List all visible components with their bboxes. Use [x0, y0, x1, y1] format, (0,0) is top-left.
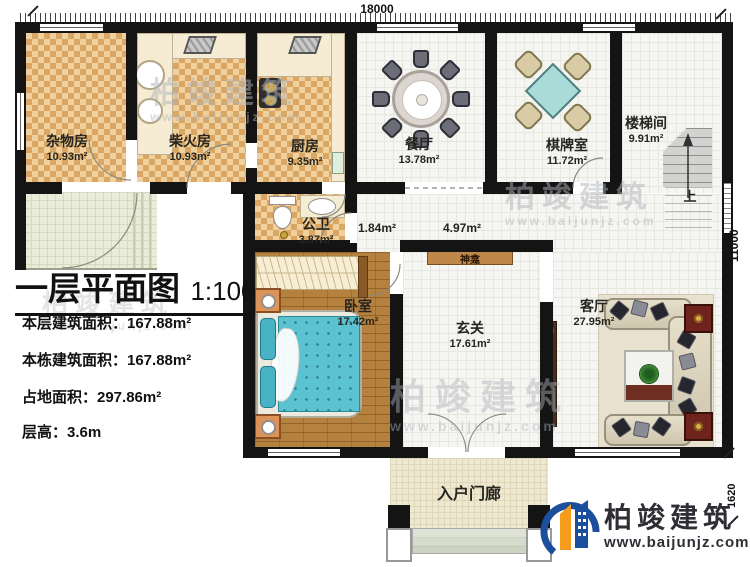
dining-table-center [416, 94, 428, 106]
wall-bath-bottom [243, 240, 350, 252]
dining-table [392, 70, 450, 128]
wall-storage-firewood [126, 33, 137, 140]
wall-foyer-living [540, 302, 553, 458]
floor-plan: 神龛 [0, 0, 750, 567]
gas-stove [259, 78, 281, 108]
burner-icon [264, 95, 277, 106]
wall-segment [345, 182, 405, 194]
wall-chess-stairwell [610, 33, 622, 182]
porch-column [388, 505, 410, 528]
bathroom-sink [308, 198, 336, 215]
kitchen-sink [332, 152, 344, 174]
wall-segment [505, 447, 575, 458]
wall-segment [243, 447, 268, 458]
bedroom-door-leaf [358, 256, 368, 298]
window [15, 93, 26, 150]
brand-url: www.baijunjz.com [604, 534, 749, 551]
terrace-steps [133, 192, 157, 268]
title-block: 一层平面图 1:100 [15, 262, 250, 316]
floor-drain [280, 231, 288, 239]
window [40, 22, 103, 33]
plan-scale: 1:100 [190, 276, 255, 306]
range-hood-icon [288, 36, 322, 54]
storage-room-floor [26, 33, 126, 182]
range-hood-icon [183, 36, 217, 54]
nightstand [254, 288, 281, 313]
wall-foyer-top [400, 240, 553, 252]
window [722, 183, 733, 233]
brand-name: 柏竣建筑 [604, 496, 736, 536]
coffee-table-shelf [626, 385, 672, 400]
brand-logo: 柏竣建筑 www.baijunjz.com [538, 490, 748, 562]
wall-segment [15, 182, 62, 194]
entry-porch-floor [390, 458, 548, 528]
window [377, 22, 458, 33]
firewood-counter-left [137, 33, 173, 155]
wall-west-bedroom [243, 194, 255, 458]
shrine-label: 神龛 [460, 255, 480, 266]
nightstand [254, 414, 281, 439]
dining-chair [452, 91, 470, 107]
wardrobe [256, 256, 360, 290]
title-line-building-area: 本栋建筑面积：167.88m² [22, 349, 191, 370]
sofa-pillow [633, 421, 650, 438]
wood-stove-burner [137, 98, 163, 124]
stairs-lower-outline [665, 187, 712, 229]
wall-dining-chess [485, 33, 497, 182]
wall-segment [603, 182, 622, 194]
wall-segment [340, 447, 428, 458]
wall-segment [231, 182, 322, 194]
wall-bedroom-foyer [390, 294, 403, 458]
brand-logo-icon [538, 492, 600, 560]
porch-column-base-left [386, 528, 412, 562]
title-line-footprint-area: 占地面积：297.86m² [22, 386, 161, 407]
bed-pillow [260, 318, 276, 360]
side-table [684, 304, 713, 333]
wall-segment [483, 182, 573, 194]
side-table [684, 412, 713, 441]
wall-segment [150, 182, 187, 194]
window [583, 22, 635, 33]
wall-firewood-kitchen [246, 33, 257, 143]
dining-chair [413, 50, 429, 68]
plan-title: 一层平面图 [15, 270, 180, 307]
porch-steps [412, 528, 528, 554]
dimension-right: 11000 [727, 229, 741, 262]
toilet-tank [269, 196, 296, 205]
window [575, 447, 680, 458]
foyer-floor [403, 252, 540, 447]
wall-firewood-kitchen [246, 168, 257, 194]
table-plant [640, 365, 658, 383]
dining-chair [372, 91, 390, 107]
coffee-table [624, 350, 674, 402]
wood-stove-burner [135, 60, 165, 90]
burner-icon [264, 82, 277, 93]
bed-pillow [260, 366, 276, 408]
window [268, 447, 340, 458]
title-line-storey-height: 层高：3.6m [22, 421, 101, 442]
title-line-floor-area: 本层建筑面积：167.88m² [22, 312, 191, 333]
dining-chair [413, 130, 429, 148]
dimension-top: 18000 [352, 2, 402, 16]
